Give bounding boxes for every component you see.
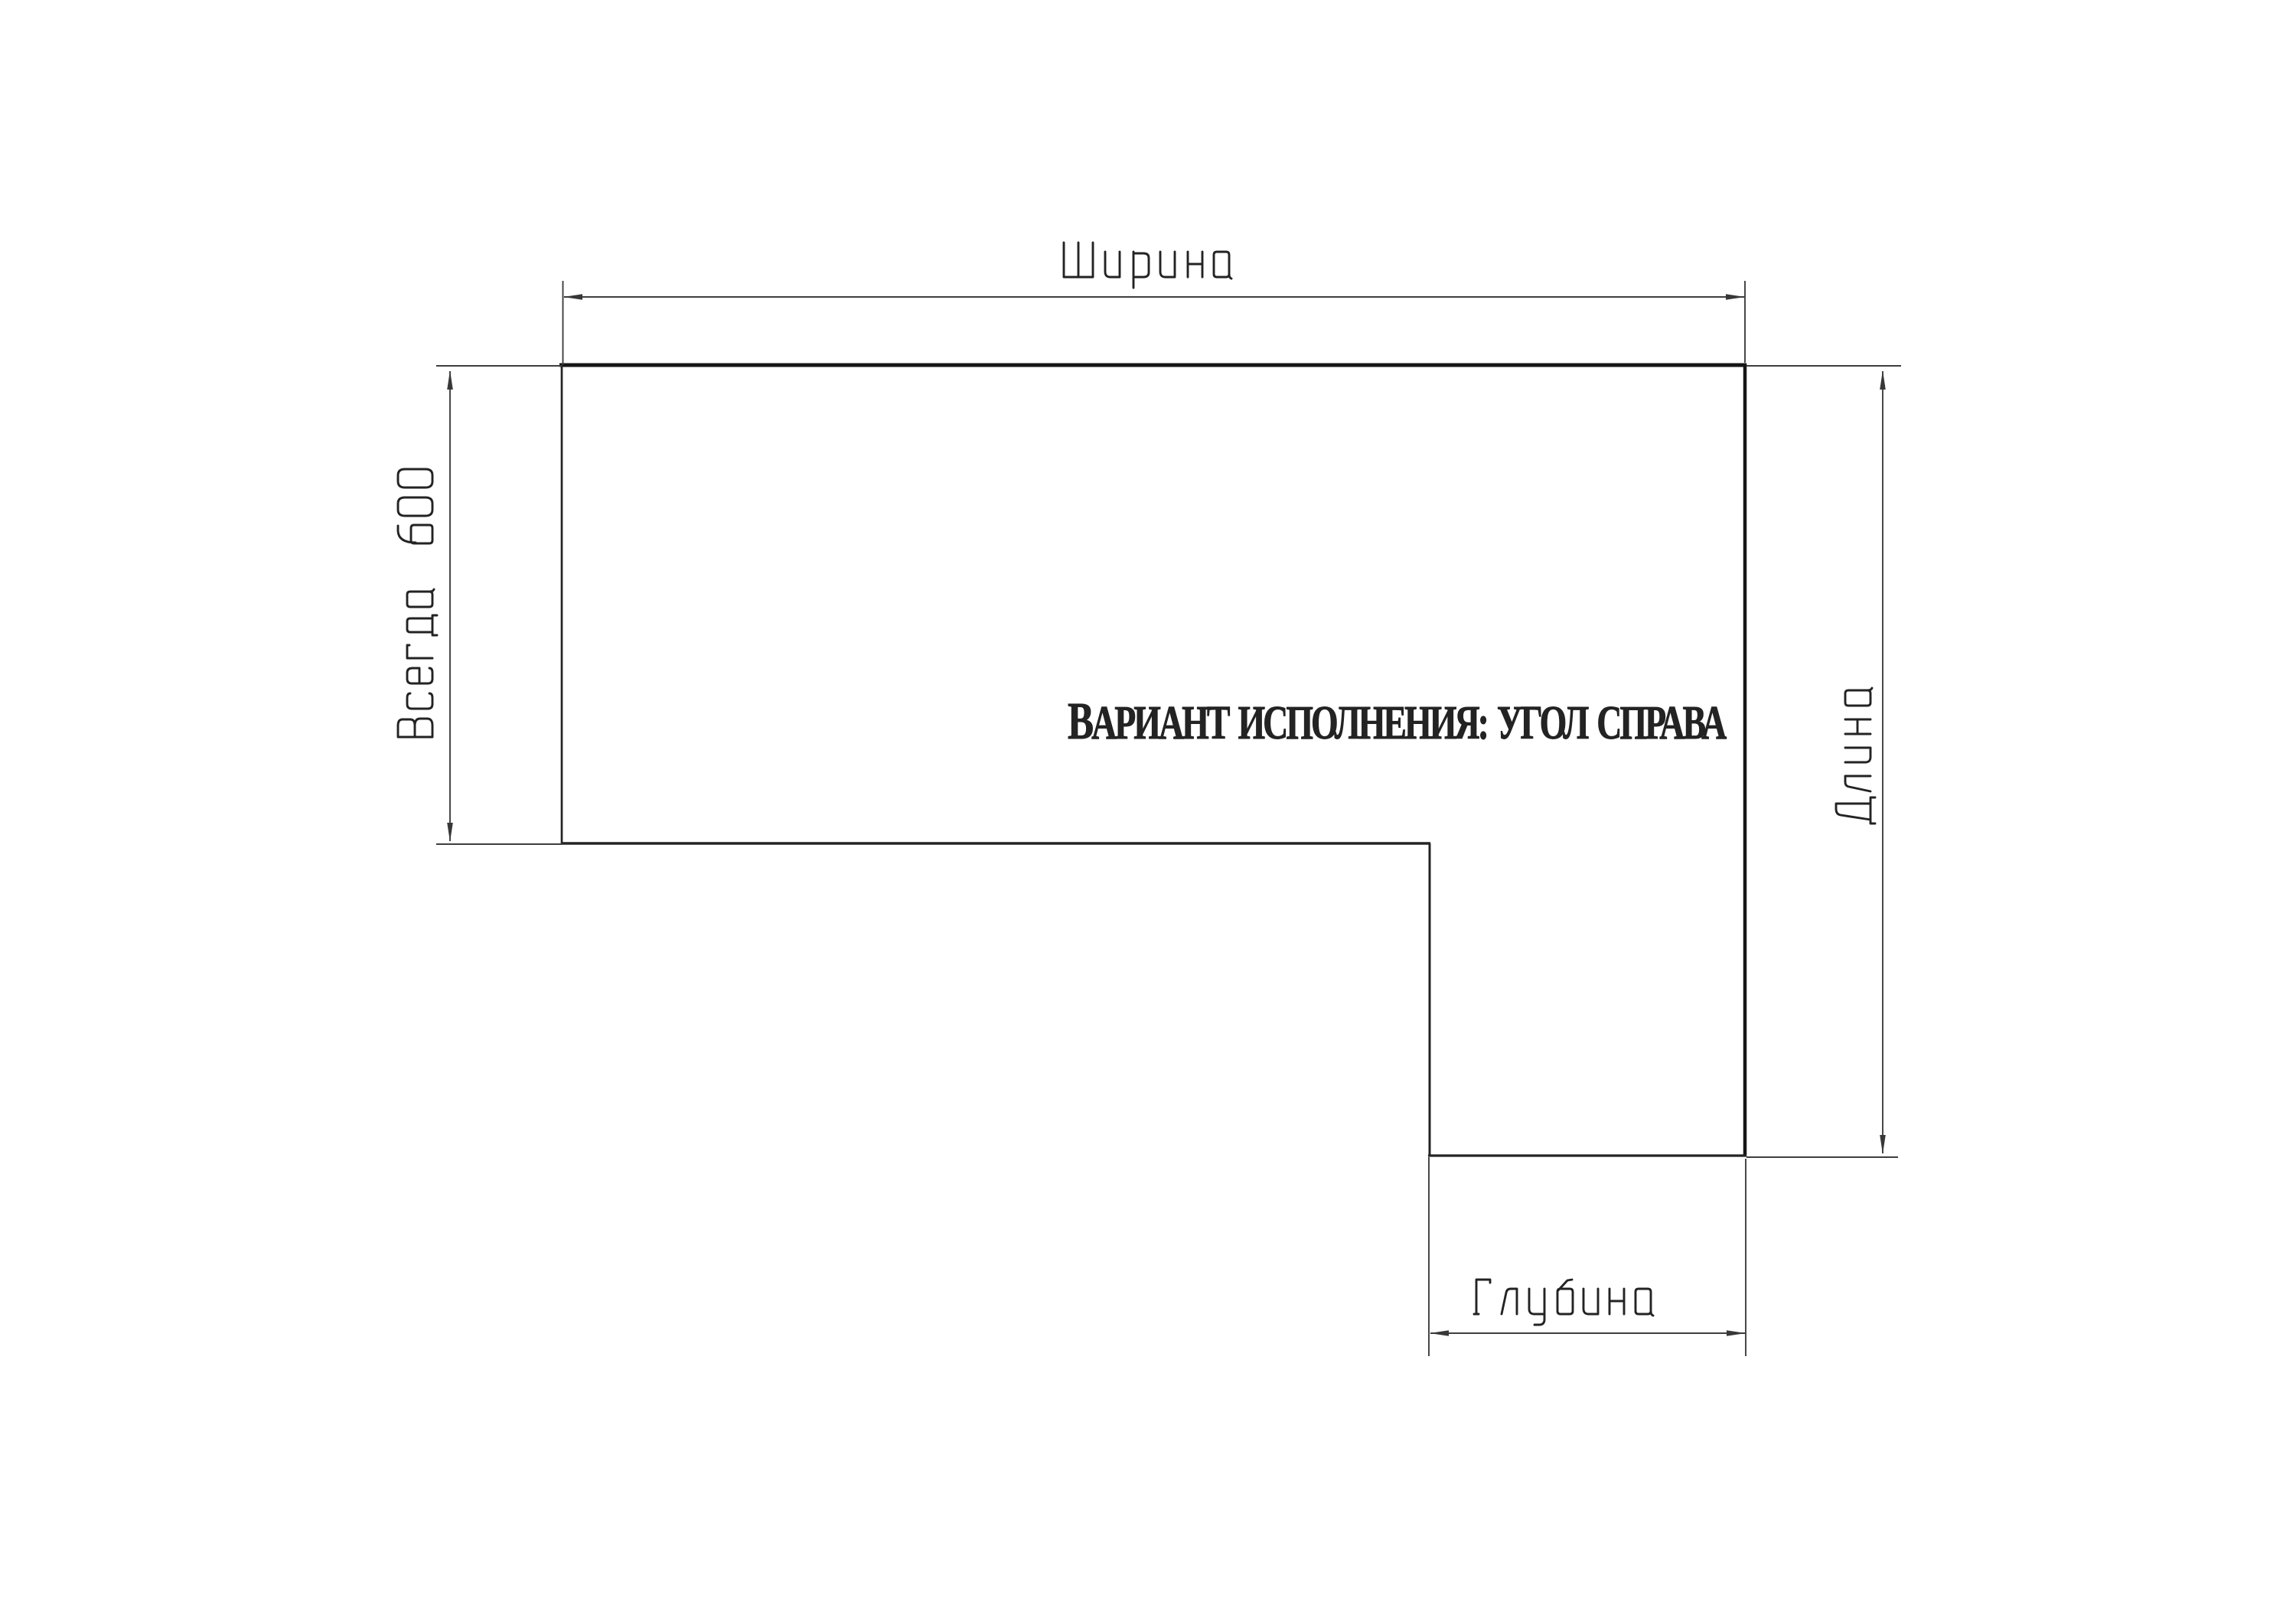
svg-text:ВАРИАНТ ИСПОЛНЕНИЯ: УГОЛ СПРАВ: ВАРИАНТ ИСПОЛНЕНИЯ: УГОЛ СПРАВА	[1068, 693, 1727, 751]
